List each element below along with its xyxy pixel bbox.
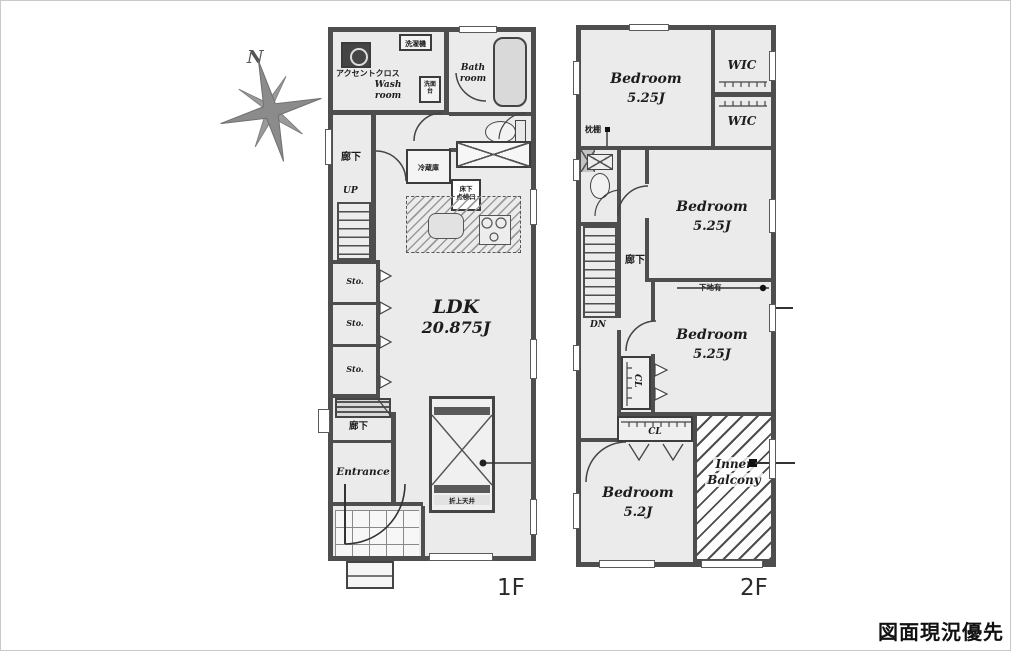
f2-window-bottom-1 <box>599 560 655 568</box>
floor1-plan: 洗濯機 アクセントクロス Wash room 洗面台 Bath room 廊下 … <box>328 27 536 561</box>
f2-toilet-tank <box>587 154 613 170</box>
floor1-label: 1F <box>497 575 525 601</box>
f1-kitchen-sink <box>428 213 464 239</box>
f1-hanging-cupboard <box>456 141 531 168</box>
f1-window-left-1 <box>325 129 332 165</box>
f1-wash-room-label: Wash room <box>357 80 419 102</box>
f1-wall-entrance-porch <box>333 502 423 506</box>
f2-window-right-1 <box>769 51 776 81</box>
f2-pillow-shelf-dot <box>605 127 610 132</box>
f1-ldk-door-arc <box>376 151 406 181</box>
drawing-note: 図面現況優先 <box>878 616 1004 645</box>
f2-cl2-fold-door-2 <box>663 444 683 460</box>
f2-closet2-box: CL <box>617 416 693 442</box>
f1-stairs <box>337 202 371 260</box>
f1-window-top-1 <box>459 26 497 33</box>
f1-fridge-box: 冷蔵庫 <box>406 149 451 184</box>
f1-ldk-name: LDK <box>433 296 479 318</box>
compass-star <box>215 57 327 165</box>
f1-sto3-label: Sto. <box>333 364 377 374</box>
compass-star-main <box>215 57 327 165</box>
f1-sto1-label: Sto. <box>333 276 377 286</box>
f2-window-top-1 <box>629 24 669 31</box>
f1-wall-corridor-entrance <box>333 440 393 443</box>
f2-wall-bedroom3-left-b <box>651 354 655 412</box>
f1-washbasin-counter <box>341 42 371 68</box>
f2-bedroom2-door-arc <box>618 186 648 216</box>
f1-toilet-bowl <box>485 121 516 143</box>
f1-window-right-2 <box>530 339 537 379</box>
f2-wic2-hanger-pipe <box>719 101 767 106</box>
f1-basin-bowl <box>350 48 368 66</box>
f2-inner-balcony <box>697 416 771 562</box>
f1-ceiling-note: 折上天井 <box>434 495 490 505</box>
f2-wall-toilet-right <box>617 150 621 222</box>
f1-up-label: UP <box>343 186 358 196</box>
f1-wall-sto-div1 <box>333 302 378 305</box>
f2-bedroom3-label: Bedroom 5.25J <box>657 324 767 362</box>
f1-sto2-label: Sto. <box>333 318 377 328</box>
f1-wall-sto-div2 <box>333 344 378 347</box>
f2-wall-bedroom4-top <box>581 438 621 442</box>
f2-toilet-bowl <box>590 173 610 199</box>
f1-corridor-bottom-label: 廊下 <box>349 418 368 432</box>
f1-niche-band-bottom <box>434 485 490 493</box>
f2-window-left-2 <box>573 159 580 181</box>
f2-corridor-label: 廊下 <box>625 251 645 266</box>
f2-cl2-label: CL <box>619 427 691 437</box>
f2-wall-wic-divider <box>711 92 771 97</box>
f1-ldk-label: LDK 20.875J <box>391 296 521 337</box>
f2-wall-note-label: 下地有 <box>699 282 722 293</box>
f2-window-left-1 <box>573 61 580 95</box>
f1-window-bottom-1 <box>429 553 493 561</box>
f1-entrance-label: Entrance <box>334 466 392 478</box>
f1-shoe-cabinet <box>335 398 391 418</box>
f2-wall-bedroom2-left-a <box>645 150 649 184</box>
f1-niche-box: 折上天井 <box>429 396 495 513</box>
f2-cl1-door-mark-2 <box>655 388 667 400</box>
f1-ldk-size: 20.875J <box>422 318 491 337</box>
compass-rose <box>215 57 327 165</box>
floor-plan-page: N 洗濯機 アクセントクロス Wash room <box>0 0 1011 651</box>
f2-cl1-door-mark-1 <box>655 364 667 376</box>
f2-bedroom4-door-arc <box>586 442 626 482</box>
f1-wall-porch-right <box>421 506 425 556</box>
f2-wall-bedroom2-left-b <box>645 218 649 282</box>
f1-washer-box: 洗濯機 <box>399 34 432 51</box>
f1-side-door <box>318 409 330 433</box>
floor2-plan: Bedroom 5.25J 枕棚 WIC WIC DN 廊下 Bedroom 5… <box>576 25 776 567</box>
f1-wall-wash-bottom <box>333 110 449 115</box>
f2-wall-bedroom3-left-a <box>651 282 655 321</box>
f1-sto3-door-mark <box>380 376 391 388</box>
f1-wall-wash-bath <box>444 32 449 114</box>
f2-bedroom2-label: Bedroom 5.25J <box>657 196 767 234</box>
f1-wall-corridor <box>371 112 376 260</box>
f2-wic1-hanger-pipe <box>719 82 767 87</box>
f1-wall-sto-top <box>333 260 378 264</box>
f2-bedroom1-label: Bedroom 5.25J <box>591 68 701 106</box>
f1-bathtub <box>493 37 527 107</box>
f2-wall-stairs-right <box>617 226 621 318</box>
f2-balcony-label: Inner Balcony <box>697 456 771 488</box>
f2-window-left-4 <box>573 493 580 529</box>
f1-fridge-label: 冷蔵庫 <box>408 163 449 173</box>
f1-vanity-label: 洗面台 <box>423 81 437 95</box>
f1-porch-tiles <box>335 510 419 556</box>
f1-niche-band-top <box>434 407 490 415</box>
f2-pillow-shelf-label: 枕棚 <box>585 124 601 135</box>
f2-wic1-label: WIC <box>715 58 769 72</box>
f1-sto2-door-mark <box>380 302 391 314</box>
f2-wall-wic-left <box>711 30 715 150</box>
f2-bedroom3-door-arc <box>626 321 656 351</box>
f2-window-right-3 <box>769 304 776 332</box>
f2-window-right-2 <box>769 199 776 233</box>
f1-wall-entrance-right <box>391 412 396 504</box>
f1-accent-cloth-label: アクセントクロス <box>336 68 400 79</box>
f1-stove <box>479 215 511 245</box>
f2-wic2-label: WIC <box>715 114 769 128</box>
f2-balcony-railing <box>701 560 763 568</box>
floor2-label: 2F <box>740 575 768 601</box>
f1-corridor-top-label: 廊下 <box>341 148 361 163</box>
f2-cl2-fold-door-1 <box>629 444 649 460</box>
f1-sto2b-door-mark <box>380 336 391 348</box>
f2-closet1-box: CL <box>621 356 651 410</box>
f1-window-right-3 <box>530 499 537 535</box>
f2-stairs <box>583 226 617 318</box>
f1-step-line <box>348 575 392 577</box>
f1-washroom-door-arc <box>414 113 441 141</box>
f1-wall-bath-toilet <box>449 112 531 116</box>
f2-window-left-3 <box>573 345 580 371</box>
f2-bedroom4-label: Bedroom 5.2J <box>583 482 693 520</box>
f2-cl1-label: CL <box>632 374 642 388</box>
f2-window-right-4 <box>769 439 776 479</box>
f1-sto1-door-mark <box>380 270 391 282</box>
f2-wall-note-dot <box>760 285 766 291</box>
f1-vanity-box: 洗面台 <box>419 76 441 103</box>
f1-outside-step <box>346 561 394 589</box>
f1-window-right-1 <box>530 189 537 225</box>
f2-wall-bedroom1-bottom <box>581 146 771 150</box>
f1-bath-label: Bath room <box>451 63 495 85</box>
f2-dn-label: DN <box>590 320 606 330</box>
f1-washer-label: 洗濯機 <box>401 39 430 49</box>
